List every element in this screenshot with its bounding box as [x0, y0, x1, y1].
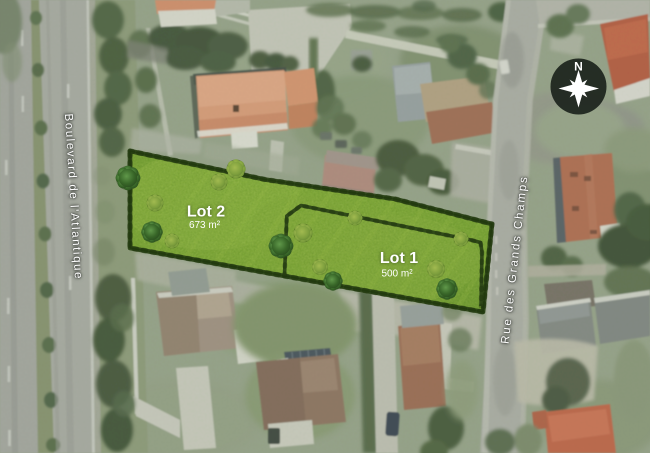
- svg-text:Lot 1: Lot 1: [380, 250, 418, 267]
- svg-text:673 m²: 673 m²: [189, 220, 221, 231]
- svg-text:Lot 2: Lot 2: [187, 204, 225, 221]
- svg-text:500 m²: 500 m²: [381, 269, 413, 280]
- svg-text:N: N: [574, 60, 583, 74]
